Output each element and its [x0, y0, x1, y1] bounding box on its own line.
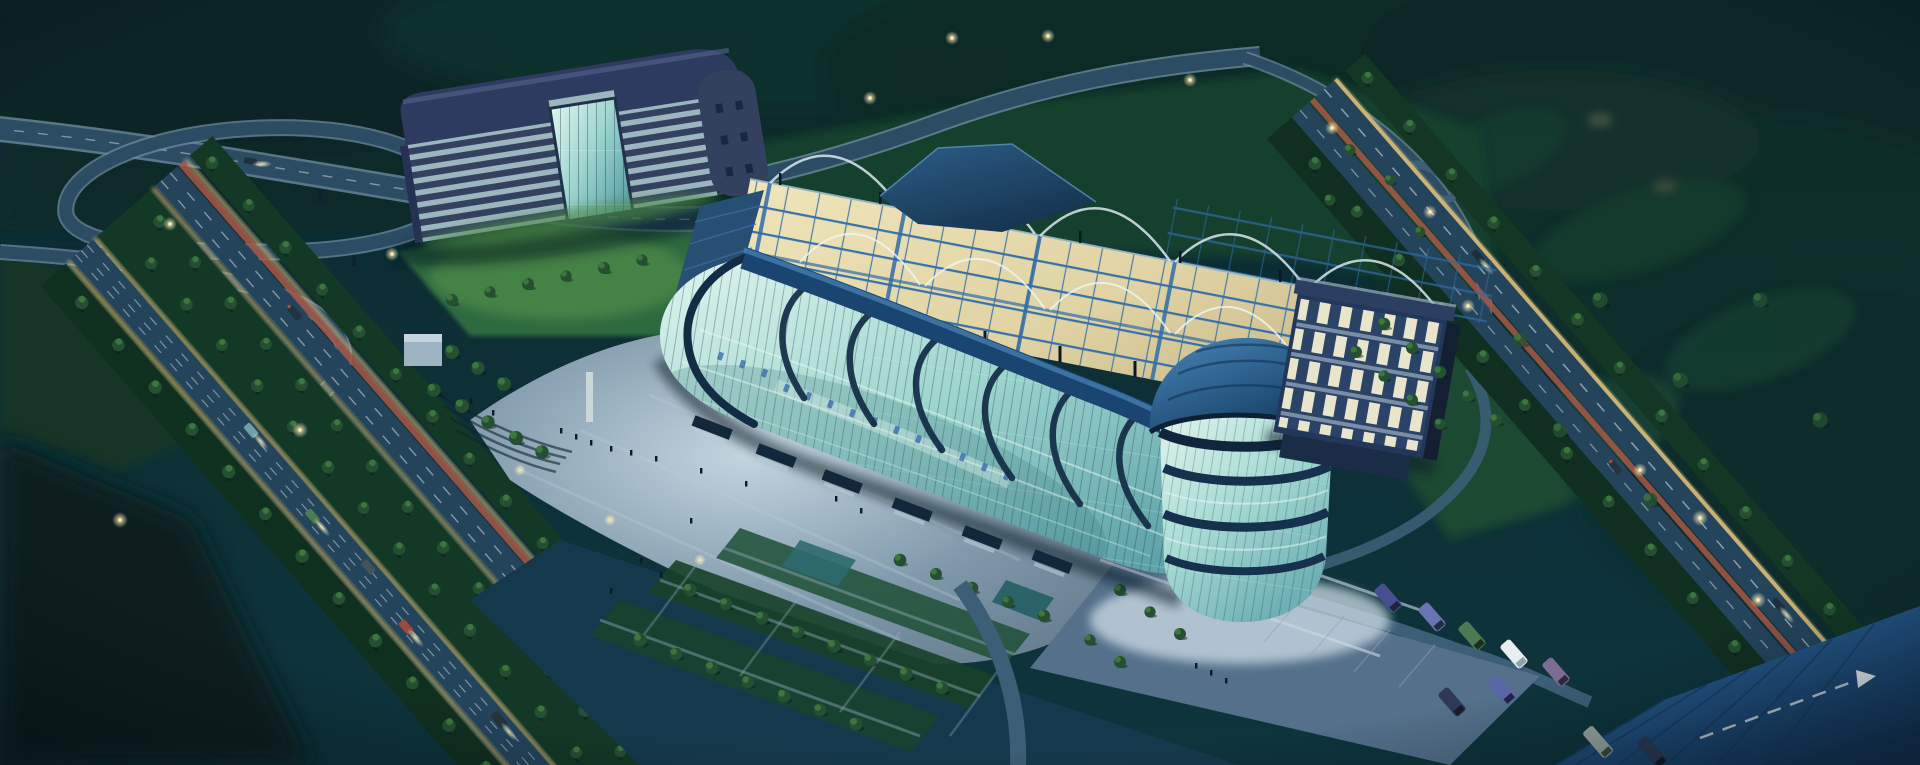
- rendering-canvas: [0, 0, 1920, 765]
- aerial-rendering: [0, 0, 1920, 765]
- vignette-overlay: [0, 0, 1920, 765]
